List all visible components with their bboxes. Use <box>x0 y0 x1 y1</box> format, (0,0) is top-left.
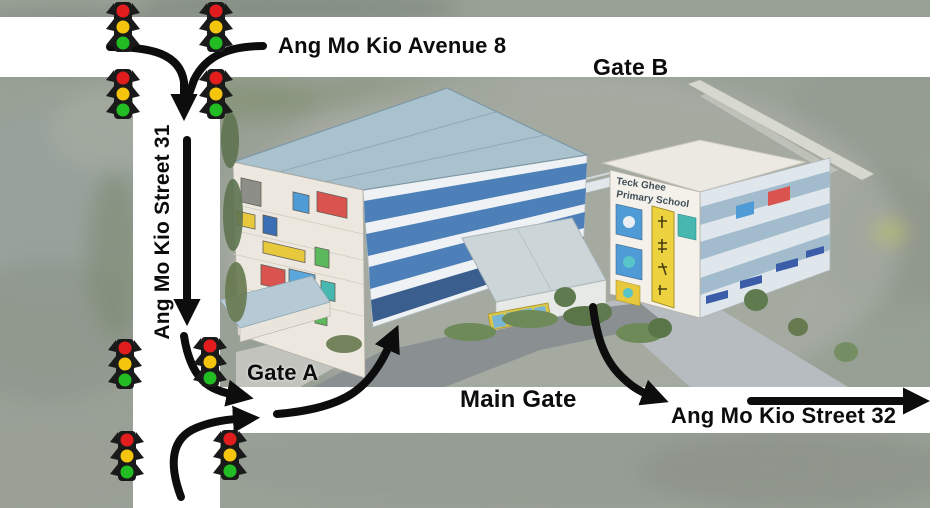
traffic-light-icon <box>105 68 141 120</box>
traffic-light-icon <box>107 338 143 390</box>
label-avenue-8: Ang Mo Kio Avenue 8 <box>278 33 506 59</box>
map-canvas: Teck Ghee Primary School <box>0 0 936 508</box>
traffic-light-icon <box>198 68 234 120</box>
label-gate-b: Gate B <box>593 54 668 81</box>
image-edge-strip <box>930 0 936 508</box>
label-street-32: Ang Mo Kio Street 32 <box>671 403 896 429</box>
traffic-light-icon <box>109 430 145 482</box>
label-street-31: Ang Mo Kio Street 31 <box>151 124 175 339</box>
label-main-gate: Main Gate <box>460 386 577 414</box>
traffic-light-icon <box>212 429 248 481</box>
traffic-light-icon <box>192 336 228 388</box>
label-gate-a: Gate A <box>247 360 318 386</box>
traffic-light-icon <box>198 1 234 53</box>
traffic-light-icon <box>105 1 141 53</box>
